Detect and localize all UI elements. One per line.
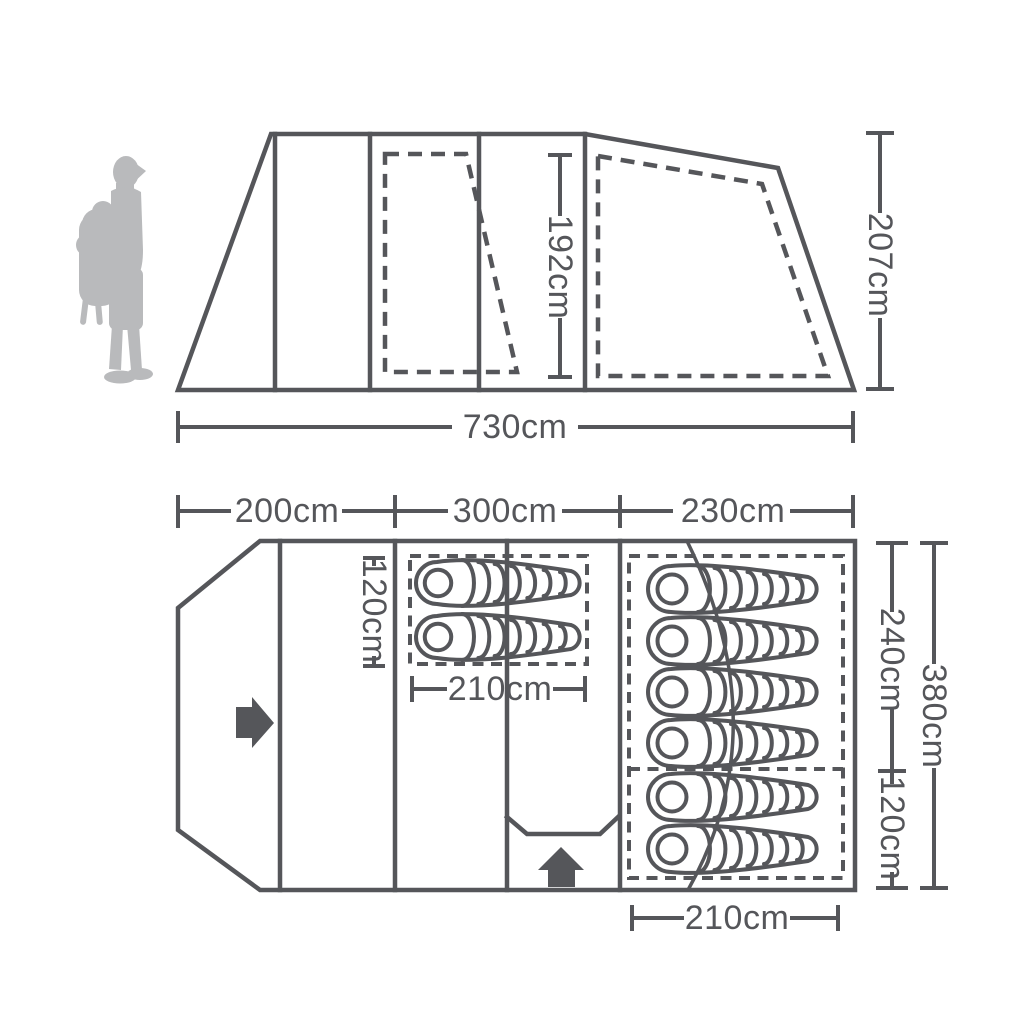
section-1-label: 200cm [235,492,340,530]
sleeping-bag [764,782,772,812]
sleeping-bag [698,720,710,766]
side-entrance-arrow-icon [236,697,274,748]
dim-rear-bedroom-width: 210cm [632,899,838,937]
sleeping-bag [797,681,803,703]
section-3-label: 230cm [681,492,786,530]
sleeping-bag-hood [425,570,451,596]
door-threshold-notch [507,817,618,834]
sleeping-bag [544,570,551,596]
sleeping-bag [648,825,817,873]
total-width-label: 380cm [915,664,953,769]
sleeping-bag [495,564,505,602]
sleeping-bag [797,630,803,652]
front-bedroom-sleeping-bags [416,560,580,660]
sleeping-bag [715,568,726,610]
sleeping-bag [764,626,772,656]
sleeping-bag [797,578,803,600]
hiker-silhouette [76,156,153,384]
sleeping-bag [731,622,741,660]
side-inner-door-dashed [385,154,517,372]
sleeping-bag [748,572,757,606]
front-entrance-arrow-icon [538,847,584,887]
sleeping-bag [731,778,741,816]
sleeping-bag [748,832,757,866]
sleeping-bag [781,730,788,756]
front-bedroom-width-label: 210cm [448,670,553,708]
hiker-back-leg [109,325,123,370]
front-bedroom-depth-label: 120cm [355,559,393,664]
sleeping-bag [648,617,817,665]
sleeping-bag [715,722,726,764]
sleeping-bag [764,574,772,604]
sleeping-bag [781,628,788,654]
sleeping-bag-hood [425,624,451,650]
sleeping-bag [748,726,757,760]
sleeping-bag [527,568,535,598]
overall-length-label: 730cm [463,408,568,446]
sleeping-bag-hood [658,678,687,707]
standing-height-label: 192cm [541,215,579,320]
sleeping-bag [781,679,788,705]
sleeping-bag [781,836,788,862]
sleeping-bag [781,784,788,810]
sleeping-bag [648,565,817,613]
sleeping-bag [462,614,474,660]
diagram-canvas: 192cm 207cm 730cm [0,0,1024,1024]
sleeping-bag [797,786,803,808]
sleeping-bag-hood [658,783,687,812]
sleeping-bag [462,560,474,606]
sleeping-bag [698,774,710,820]
sleeping-bag [478,562,489,604]
sleeping-bag [731,830,741,868]
sleeping-bag-hood [658,627,687,656]
sleeping-bag [511,566,520,600]
sleeping-bag [511,620,520,654]
sleeping-bag [764,834,772,864]
dim-overall-height: 207cm [861,133,899,389]
side-view: 192cm 207cm 730cm [178,133,899,446]
sleeping-bag [560,626,566,648]
sleeping-bag-hood [658,575,687,604]
dim-front-bedroom-width: 210cm [412,670,585,708]
rear-bedroom-main-depth-label: 240cm [873,608,911,713]
section-2-label: 300cm [453,492,558,530]
sleeping-bag [715,671,726,713]
sleeping-bag [764,728,772,758]
sleeping-bag [781,576,788,602]
sleeping-bag-hood [658,729,687,758]
dim-standing-height: 192cm [541,155,579,377]
rear-bedroom-width-label: 210cm [685,899,790,937]
sleeping-bag [748,675,757,709]
side-view-outline [178,134,854,390]
sleeping-bag [698,669,710,715]
sleeping-bag [748,780,757,814]
dim-sections: 200cm 300cm 230cm [178,492,853,530]
hiker-front-leg [127,325,142,370]
hiker-face [128,158,146,185]
rear-bedroom-small-sleeping-bags [648,773,817,873]
sleeping-bag [748,624,757,658]
overall-height-label: 207cm [861,213,899,318]
rear-bedroom-small-depth-label: 120cm [873,776,911,881]
sleeping-bag [698,618,710,664]
sleeping-bag [731,570,741,608]
sleeping-bag [715,828,726,870]
sleeping-bag [797,732,803,754]
sleeping-bag [544,624,551,650]
sleeping-bag-hood [658,835,687,864]
dim-front-bedroom-depth: 120cm [355,558,393,666]
sleeping-bag [797,838,803,860]
dim-rear-bedroom-depths: 240cm 120cm [873,543,911,888]
sleeping-bag [648,773,817,821]
dim-total-width: 380cm [915,543,953,888]
tent-dimensions-diagram: 192cm 207cm 730cm [0,0,1024,1024]
dim-overall-length: 730cm [178,408,853,446]
sleeping-bag [527,622,535,652]
side-inner-bedroom-dashed [598,156,828,376]
sleeping-bag [478,616,489,658]
floor-plan: 200cm 300cm 230cm 120cm 210cm [178,492,953,937]
sleeping-bag [495,618,505,656]
sleeping-bag [560,572,566,594]
sleeping-bag [764,677,772,707]
